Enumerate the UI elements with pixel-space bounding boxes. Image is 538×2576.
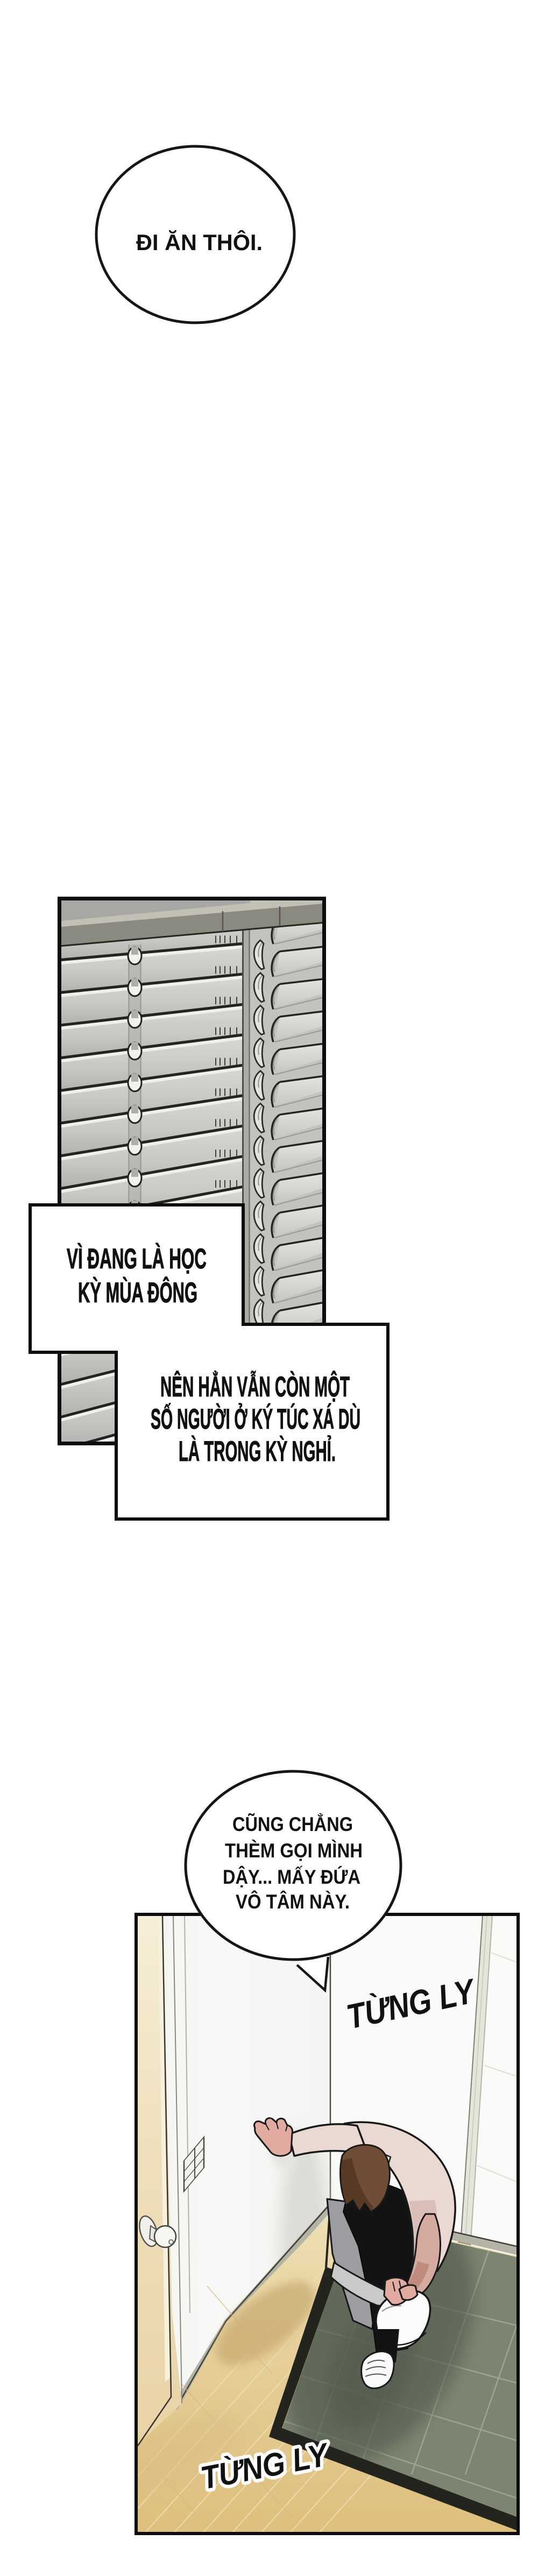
svg-text:VÔ TÂM NÀY.: VÔ TÂM NÀY. bbox=[236, 1890, 350, 1913]
svg-text:VÌ ĐANG LÀ HỌC: VÌ ĐANG LÀ HỌC bbox=[67, 1243, 207, 1275]
svg-text:KỲ MÙA ĐÔNG: KỲ MÙA ĐÔNG bbox=[78, 1276, 197, 1309]
svg-text:THÈM GỌI MÌNH: THÈM GỌI MÌNH bbox=[225, 1840, 363, 1862]
svg-text:DẬY... MẤY ĐỨA: DẬY... MẤY ĐỨA bbox=[223, 1865, 360, 1888]
svg-text:CŨNG CHẲNG: CŨNG CHẲNG bbox=[232, 1813, 353, 1835]
svg-text:ĐI ĂN THÔI.: ĐI ĂN THÔI. bbox=[136, 229, 263, 255]
svg-text:NÊN HẲN VẪN CÒN MỘT: NÊN HẲN VẪN CÒN MỘT bbox=[160, 1370, 350, 1403]
svg-text:SỐ NGƯỜI Ở KÝ TÚC XÁ DÙ: SỐ NGƯỜI Ở KÝ TÚC XÁ DÙ bbox=[151, 1403, 360, 1435]
svg-text:LÀ TRONG KỲ NGHỈ.: LÀ TRONG KỲ NGHỈ. bbox=[179, 1435, 336, 1467]
